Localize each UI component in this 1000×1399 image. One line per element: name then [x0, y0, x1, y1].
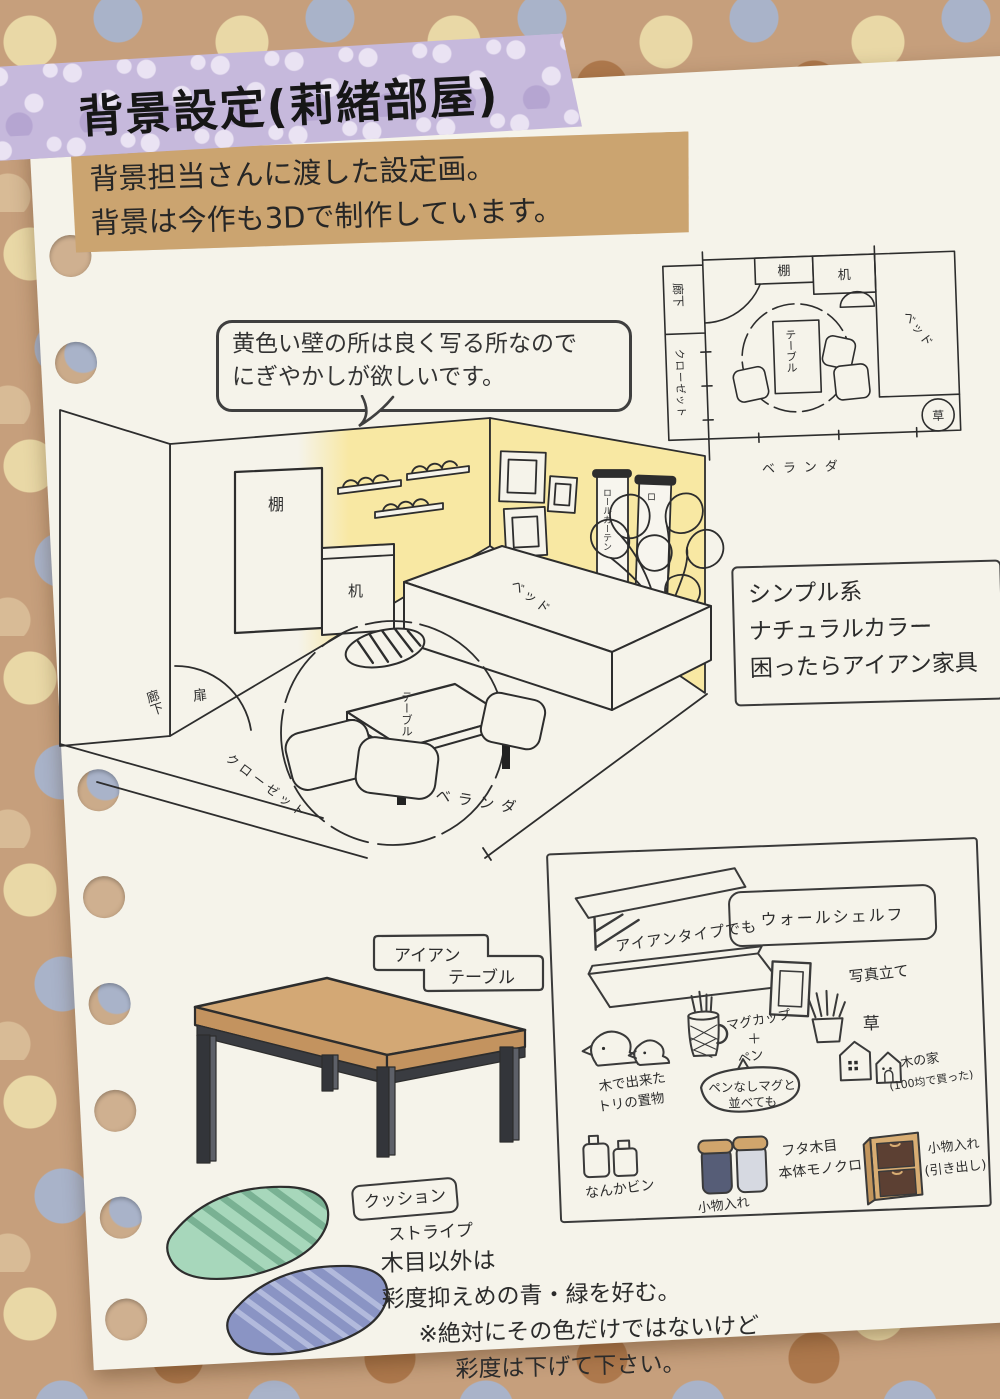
bubble-line-2: にぎやかしが欲しいです。 — [232, 361, 616, 394]
style-note-line-2: ナチュラルカラー — [748, 608, 987, 651]
bottle-label: なんかビン — [584, 1177, 655, 1202]
plan-cushion-icon — [833, 363, 870, 400]
plan-cushion-icon — [732, 365, 770, 403]
iron-table-label-box: アイアン テーブル — [366, 930, 551, 1000]
plan-plant-label: 草 — [932, 409, 944, 423]
plan-bed-label: ベッド — [900, 308, 936, 350]
speech-bubble-tail-icon — [352, 395, 400, 431]
mug-with-pens-icon — [687, 991, 728, 1058]
stripe-label: ストライプ — [387, 1216, 473, 1245]
bottles-icon — [583, 1134, 638, 1177]
style-note-line-3: 困ったらアイアン家具 — [749, 645, 988, 688]
room-desk-label: 机 — [348, 582, 363, 600]
drawer-box-icon — [863, 1133, 923, 1205]
page-title: 背景設定(莉緒部屋) — [77, 59, 501, 146]
room-door-label: 扉 — [192, 687, 208, 704]
items-panel: アイアンタイプでも ウォールシェルフ 写真立て 木で出来た トリの置物 マグカッ… — [544, 835, 998, 1230]
room-table-label: テーブル — [400, 691, 414, 737]
speech-bubble: 黄色い壁の所は良く写る所なので にぎやかしが欲しいです。 — [216, 320, 632, 412]
color-note-line-4: 彩度は下げて下さい。 — [455, 1344, 761, 1388]
storage-jars-icon — [698, 1136, 769, 1194]
room-veranda-label: ベランダ — [434, 786, 524, 818]
punch-hole — [54, 341, 98, 385]
style-note-box: シンプル系 ナチュラルカラー 困ったらアイアン家具 — [731, 559, 1000, 706]
punch-hole — [88, 982, 132, 1026]
wardrobe-icon — [235, 468, 322, 633]
punch-hole — [93, 1089, 137, 1133]
bubble-line-1: 黄色い壁の所は良く写る所なので — [232, 328, 616, 361]
roll-curtain2-label: ロ — [647, 493, 656, 503]
photo-frame-icon — [770, 961, 811, 1016]
drawer-label-2: (引き出し) — [924, 1158, 987, 1180]
punch-hole — [99, 1196, 143, 1240]
wooden-birds-icon — [582, 1029, 669, 1067]
punch-hole — [104, 1297, 148, 1341]
wall-shelf-label: ウォールシェルフ — [760, 905, 905, 930]
grass-pot-icon — [808, 990, 846, 1042]
notebook-scan-root: 背景設定(莉緒部屋) 背景担当さんに渡した設定画。 背景は今作も3Dで制作してい… — [0, 0, 1000, 1399]
room-shelf-label: 棚 — [268, 495, 284, 514]
roll-curtain-label: ロールカーテン — [601, 488, 612, 551]
wooden-houses-icon — [839, 1040, 901, 1084]
jar-label: 小物入れ — [697, 1195, 750, 1216]
mug-label-2: ＋ — [747, 1031, 762, 1048]
iron-table-label-top: アイアン — [394, 946, 460, 966]
jar-note-2: 本体モノクロ — [778, 1157, 863, 1182]
photo-stand-label: 写真立て — [848, 962, 910, 986]
plan-shelf-label: 棚 — [777, 264, 791, 279]
plan-desk-label: 机 — [837, 268, 851, 283]
mug-bubble-label-2: 並べても — [728, 1094, 777, 1111]
mug-label-3: ペン — [737, 1047, 766, 1067]
plan-table-label: テーブル — [784, 329, 799, 373]
iron-table-label-bottom: テーブル — [448, 967, 515, 988]
mug-label-1: マグカップ — [725, 1008, 792, 1034]
punch-hole — [82, 875, 126, 919]
plan-hallway-label: 廊下 — [670, 283, 686, 308]
grass-label: 草 — [862, 1014, 880, 1035]
color-note: 木目以外は 彩度抑えめの青・緑を好む。 ※絶対にその色だけではないけど 彩度は下… — [380, 1236, 760, 1390]
jar-note-1: フタ木目 — [781, 1138, 838, 1160]
style-note-line-1: シンプル系 — [747, 571, 986, 614]
house-label-1: 木の家 — [899, 1050, 940, 1071]
drawer-label-1: 小物入れ — [927, 1136, 980, 1157]
